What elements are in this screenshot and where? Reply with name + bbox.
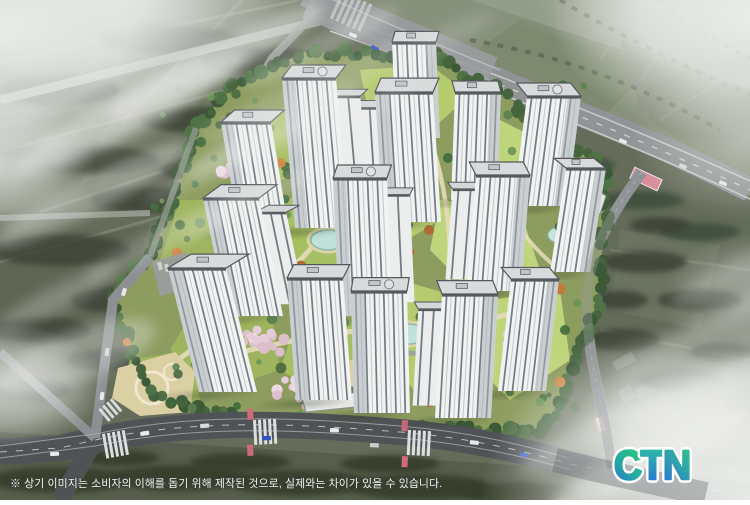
svg-text:※ 상기 이미지는 소비자의 이해를 돕기 위해 제작된 것: ※ 상기 이미지는 소비자의 이해를 돕기 위해 제작된 것으로, 실제와는 차… bbox=[10, 476, 442, 490]
svg-text:N: N bbox=[663, 443, 691, 488]
svg-text:T: T bbox=[641, 443, 665, 488]
svg-text:C: C bbox=[614, 443, 642, 488]
